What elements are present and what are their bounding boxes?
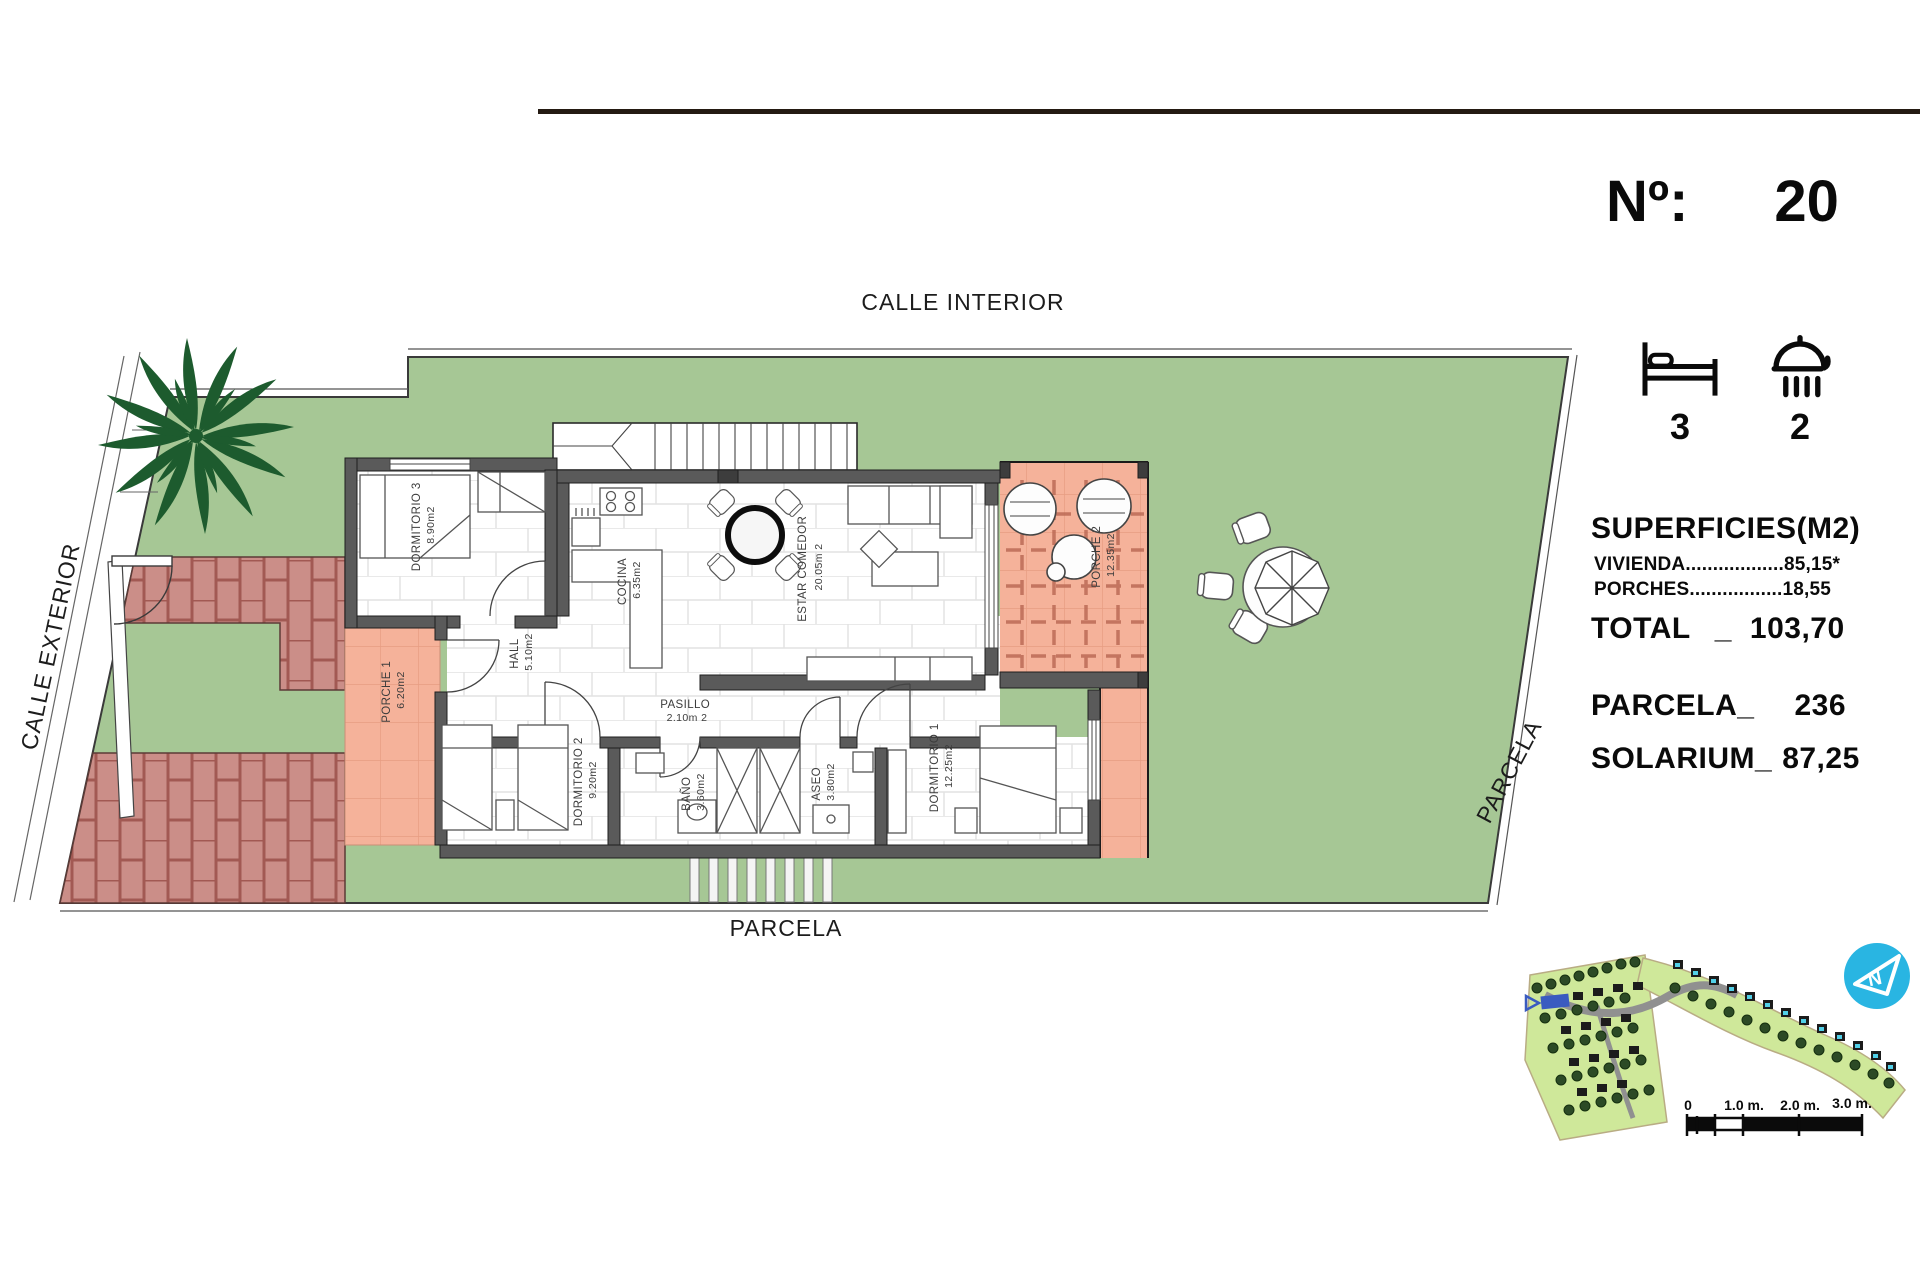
total-row: TOTAL _ 103,70: [1591, 612, 1845, 646]
bano-name: BAÑO: [680, 777, 693, 811]
total-value: 103,70: [1750, 612, 1845, 646]
plot-number-value: 20: [1774, 168, 1839, 235]
aseo-name: ASEO: [811, 767, 823, 801]
parcela-label: PARCELA_: [1591, 689, 1754, 723]
street-label-bottom: PARCELA: [730, 915, 843, 941]
hall-name: HALL: [509, 638, 521, 669]
scale-tick-1: 1.0 m.: [1724, 1097, 1764, 1113]
dormitorio3-name: DORMITORIO 3: [411, 482, 423, 571]
solarium-label: SOLARIUM_: [1591, 742, 1772, 776]
building: [345, 423, 1148, 858]
street-label-top: CALLE INTERIOR: [861, 289, 1064, 315]
solarium-value: 87,25: [1782, 742, 1860, 776]
developer-logo: N: [1844, 943, 1910, 1009]
parcela-value: 236: [1794, 689, 1846, 723]
scale-tick-2: 2.0 m.: [1780, 1097, 1820, 1113]
hall-area: 5.10m2: [523, 633, 535, 670]
scale-bar: 0 1.0 m. 2.0 m. 3.0 m.: [1684, 1095, 1872, 1136]
header-rule: [538, 109, 1920, 114]
cocina-name: COCINA: [617, 558, 629, 605]
pasillo-area: 2.10m 2: [667, 712, 708, 724]
porche1-area: 6.20m2: [395, 671, 407, 708]
estar-area: 20.05m 2: [813, 544, 825, 591]
bathrooms-feature: [1766, 334, 1834, 405]
dormitorio2-name: DORMITORIO 2: [573, 737, 585, 826]
aseo-area: 3.80m2: [825, 763, 837, 800]
total-separator: _: [1715, 612, 1732, 646]
surfaces-title: SUPERFICIES(M2): [1591, 512, 1860, 546]
porche1-floor: [345, 622, 440, 845]
bed-icon: [1640, 340, 1720, 398]
porches-line: PORCHES.................18,55: [1594, 579, 1831, 601]
plot-number: Nº: 20: [1606, 168, 1839, 235]
solarium-row: SOLARIUM_ 87,25: [1591, 742, 1860, 776]
exterior-stairs: [553, 423, 857, 470]
total-label: TOTAL: [1591, 612, 1691, 646]
bathrooms-count: 2: [1766, 406, 1834, 448]
stove-icon: [600, 488, 642, 515]
vivienda-line: VIVIENDA..................85,15*: [1594, 554, 1840, 576]
plot-number-label: Nº:: [1606, 168, 1688, 235]
fridge-icon: [572, 518, 600, 546]
parcela-row: PARCELA_ 236: [1591, 689, 1846, 723]
room-label-pasillo: PASILLO 2.10m 2: [660, 699, 714, 724]
dormitorio1-area: 12.25m2: [943, 744, 955, 788]
bedrooms-count: 3: [1638, 406, 1722, 448]
shower-icon: [1768, 334, 1832, 400]
pasillo-name: PASILLO: [660, 699, 710, 711]
porche1-name: PORCHE 1: [381, 661, 393, 723]
scale-tick-0: 0: [1684, 1097, 1692, 1113]
cocina-area: 6.35m2: [631, 561, 643, 598]
dormitorio2-area: 9.20m2: [587, 761, 599, 798]
bedrooms-feature: [1638, 340, 1722, 403]
dormitorio1-name: DORMITORIO 1: [929, 723, 941, 812]
bano-area: 3.60m2: [695, 773, 707, 810]
estar-name: ESTAR COMEDOR: [797, 516, 809, 622]
solarium-paving: [60, 753, 345, 903]
porche2-name: PORCHE 2: [1091, 526, 1103, 588]
scale-tick-3: 3.0 m.: [1832, 1095, 1872, 1111]
porche2-area: 12.35m2: [1105, 533, 1117, 577]
dormitorio3-area: 8.90m2: [425, 506, 437, 543]
